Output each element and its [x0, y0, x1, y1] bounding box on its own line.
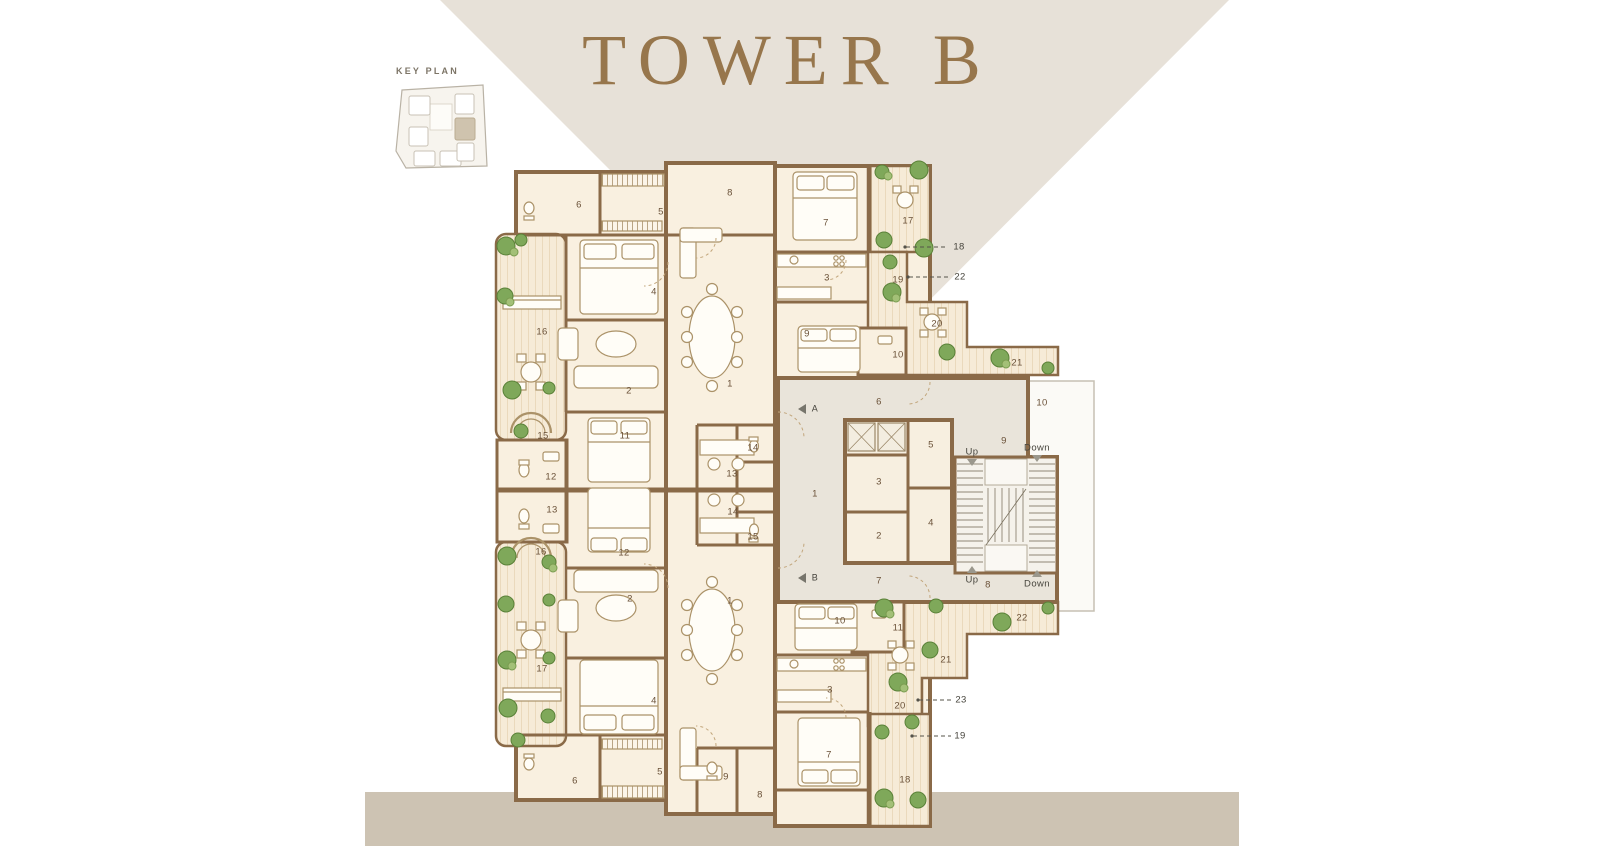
- key-plan-title: KEY PLAN: [396, 66, 459, 76]
- floor-plan: [496, 161, 1094, 826]
- floor-plan-svg: [0, 0, 1600, 846]
- bed: [588, 418, 650, 482]
- bath-10-top: [858, 328, 906, 375]
- keyplan-block: [455, 94, 474, 114]
- bed: [580, 660, 658, 734]
- keyplan-block: [457, 143, 474, 161]
- bed: [588, 488, 650, 552]
- page-title: TOWER B: [582, 24, 994, 96]
- keyplan-highlighted-tower: [455, 118, 475, 140]
- bed: [798, 326, 860, 372]
- page: TOWER B KEY PLAN 65871743191691020212115…: [0, 0, 1600, 846]
- bed: [580, 240, 658, 314]
- keyplan-block: [409, 96, 430, 115]
- staircase: [955, 455, 1057, 577]
- key-plan-diagram: [396, 85, 487, 168]
- keyplan-block: [409, 127, 428, 146]
- stair-landing: [985, 459, 1027, 485]
- stair-landing: [985, 545, 1027, 571]
- bed: [793, 172, 857, 240]
- bed: [795, 604, 857, 650]
- elevator-block: [845, 420, 952, 563]
- keyplan-block: [414, 151, 435, 166]
- bed: [798, 718, 860, 786]
- terrace-16-top: [496, 234, 566, 440]
